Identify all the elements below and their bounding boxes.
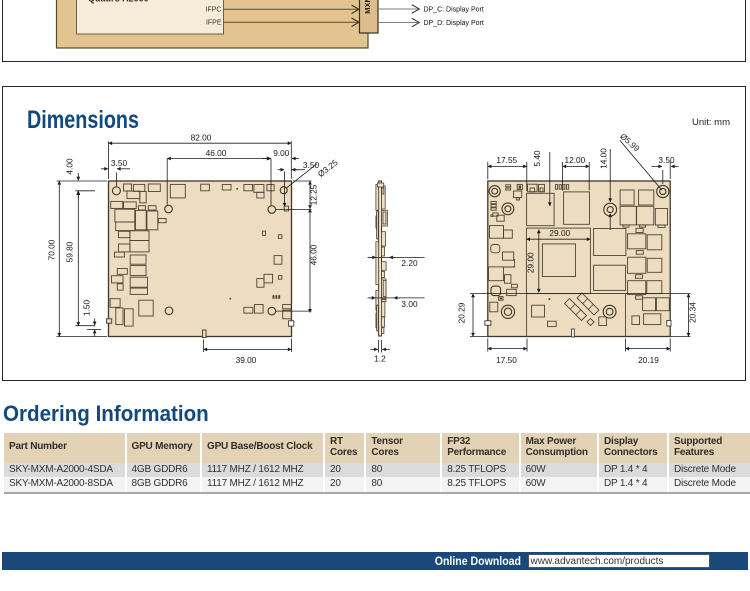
svg-text:DP_D: Display Port: DP_D: Display Port [424, 20, 484, 27]
svg-text:46.00: 46.00 [309, 244, 319, 265]
svg-text:DP_C: Display Port: DP_C: Display Port [424, 6, 484, 13]
svg-text:4.00: 4.00 [65, 158, 75, 175]
svg-text:1.50: 1.50 [82, 300, 92, 317]
svg-text:17.55: 17.55 [496, 155, 517, 165]
svg-text:39.00: 39.00 [236, 355, 257, 365]
svg-text:20.34: 20.34 [688, 302, 698, 323]
svg-text:IFPC: IFPC [206, 7, 222, 14]
svg-text:Ø3.25: Ø3.25 [316, 157, 340, 179]
svg-text:3.50: 3.50 [111, 158, 128, 168]
svg-text:9.00: 9.00 [273, 148, 290, 158]
svg-text:29.00: 29.00 [549, 228, 570, 238]
svg-text:29.00: 29.00 [526, 252, 536, 273]
svg-text:1.2: 1.2 [374, 354, 386, 364]
svg-text:12.00: 12.00 [565, 155, 586, 165]
svg-text:12.25: 12.25 [309, 184, 319, 205]
svg-text:Quadro A2000: Quadro A2000 [88, 0, 149, 4]
svg-text:20.29: 20.29 [457, 302, 467, 323]
svg-text:20.19: 20.19 [638, 355, 659, 365]
svg-text:3.50: 3.50 [658, 155, 675, 165]
svg-text:59.80: 59.80 [65, 241, 75, 262]
svg-text:14.00: 14.00 [598, 148, 608, 169]
svg-text:2.20: 2.20 [401, 258, 418, 268]
svg-text:5.40: 5.40 [532, 150, 542, 167]
svg-text:MXM: MXM [363, 0, 372, 14]
svg-text:82.00: 82.00 [191, 133, 212, 143]
svg-text:70.00: 70.00 [47, 239, 57, 260]
svg-text:46.00: 46.00 [206, 148, 227, 158]
svg-text:3.00: 3.00 [401, 299, 418, 309]
svg-text:17.50: 17.50 [496, 355, 517, 365]
svg-text:IFPE: IFPE [206, 20, 222, 27]
